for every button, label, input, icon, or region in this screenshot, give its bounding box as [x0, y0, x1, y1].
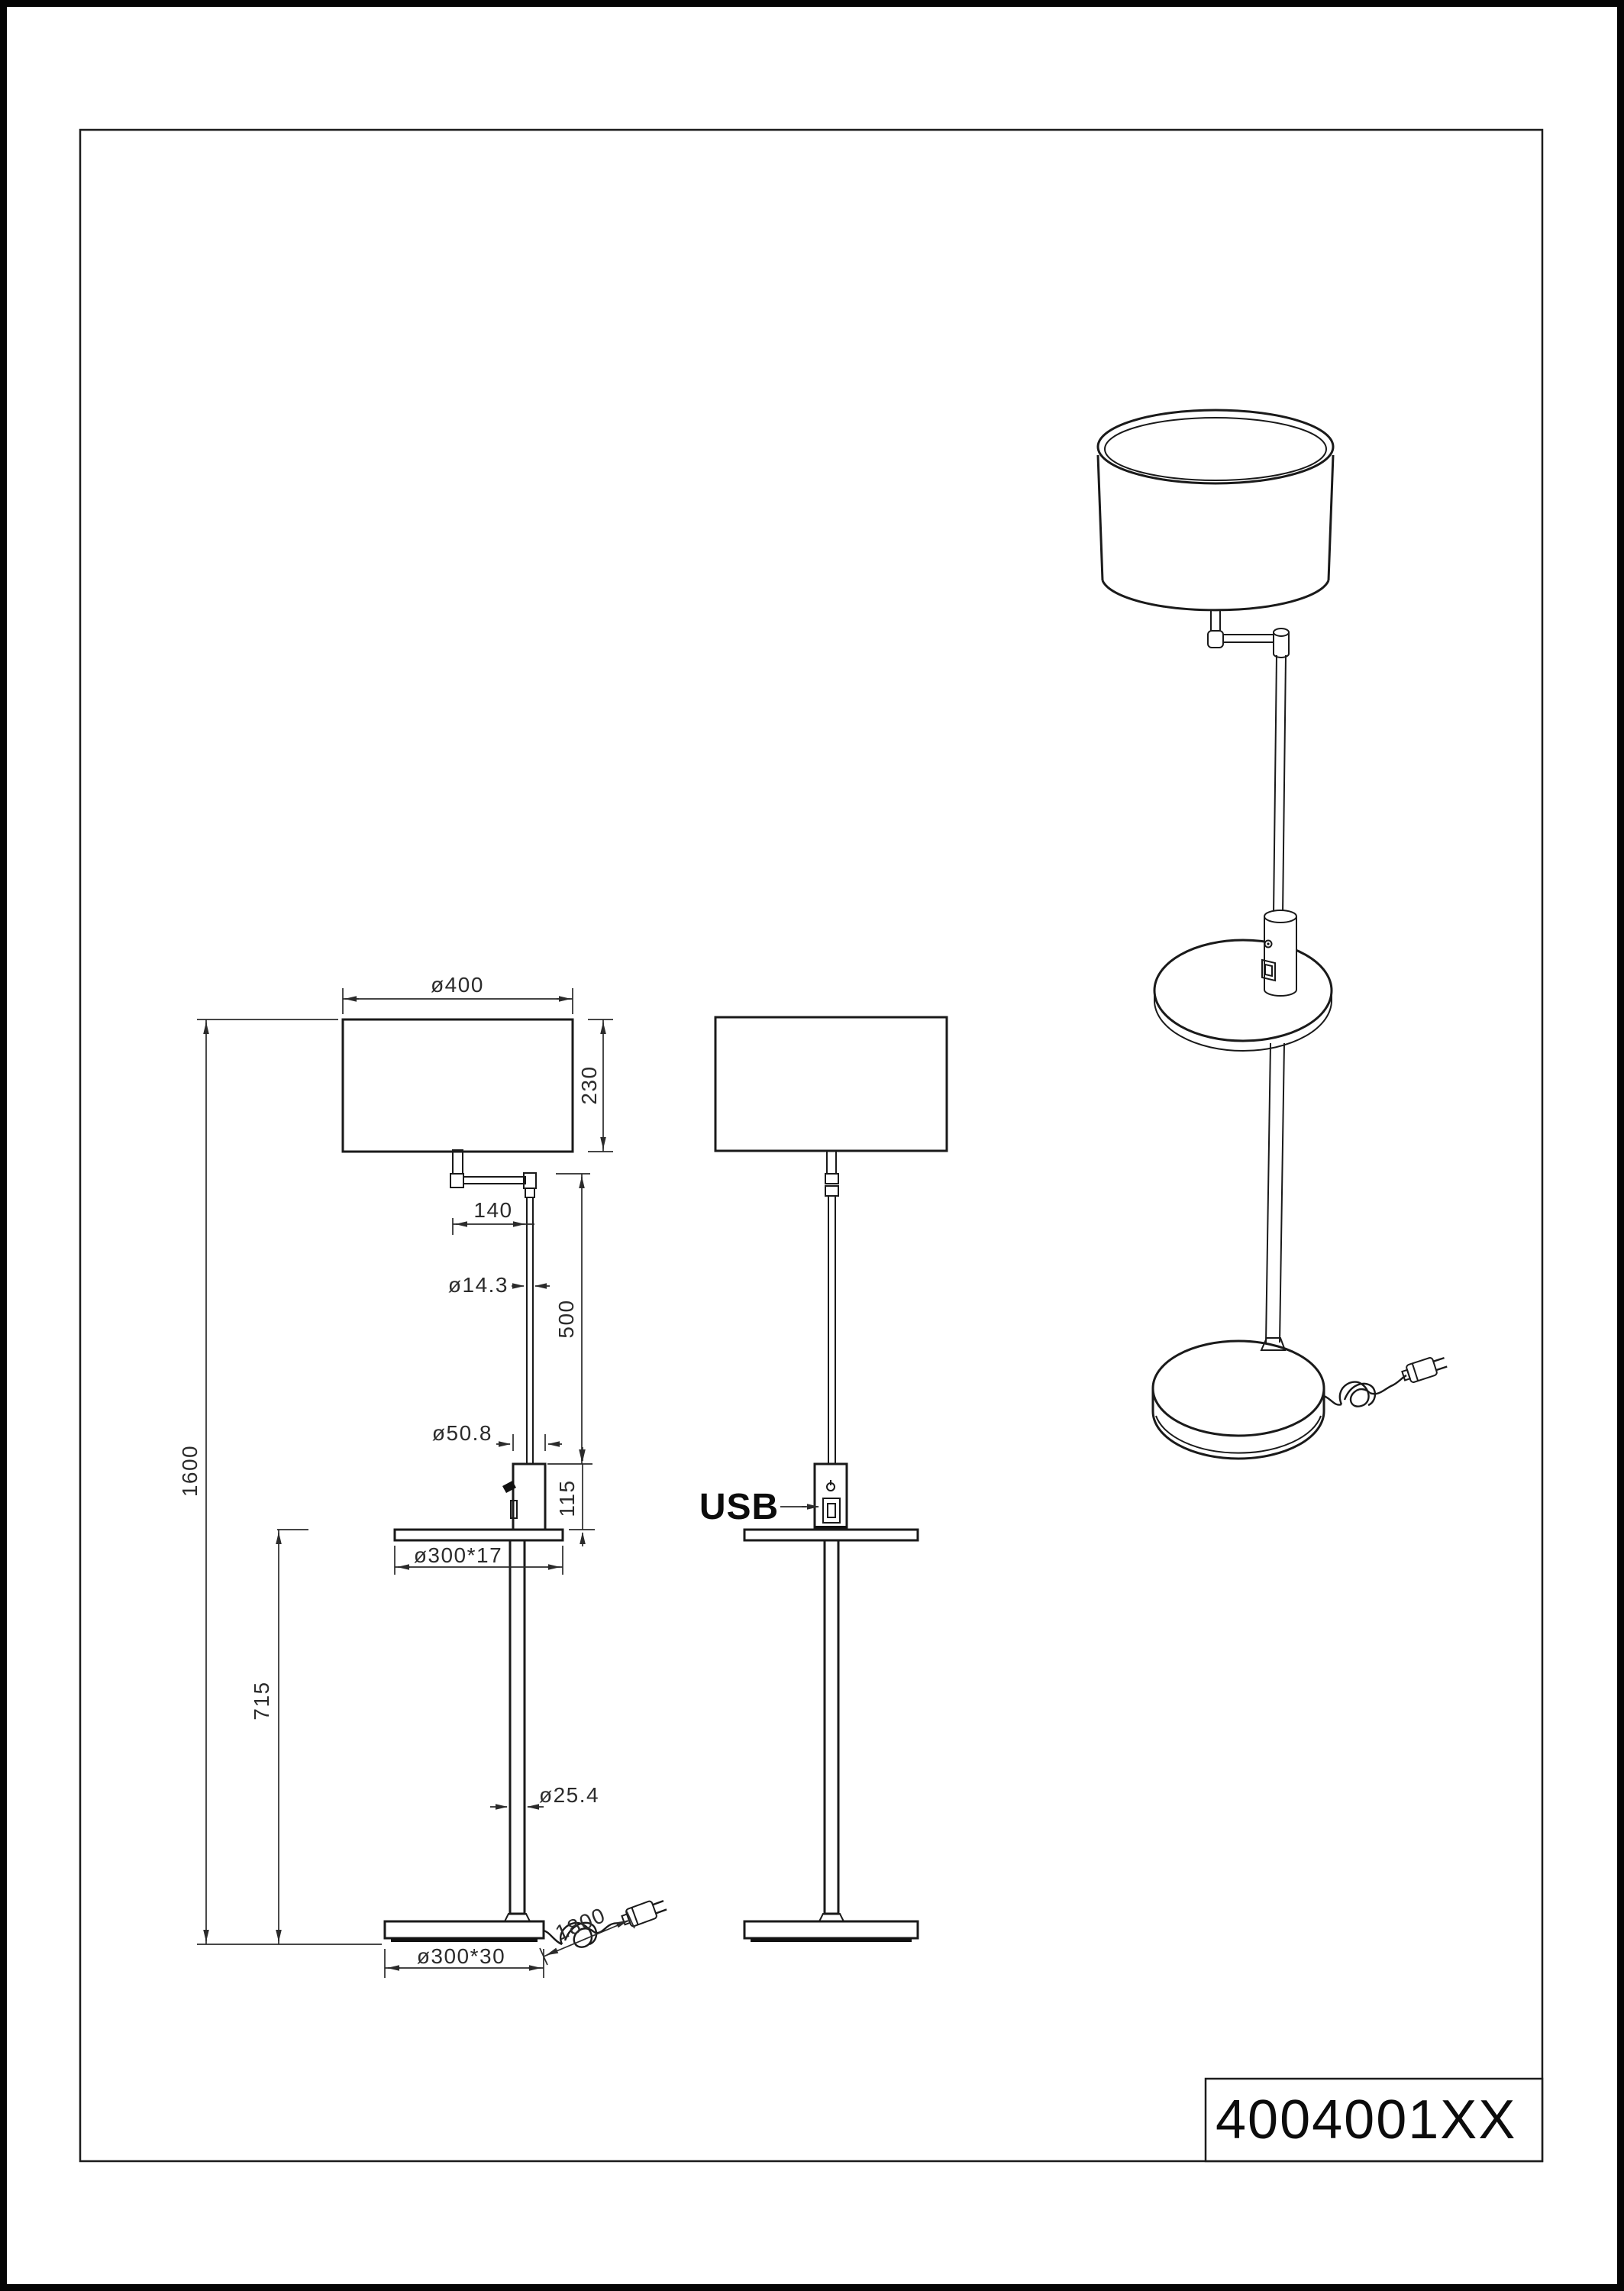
dim-arm-length: 140: [453, 1198, 534, 1235]
power-button-icon: [827, 1480, 835, 1491]
joint-upper-front: [825, 1174, 838, 1184]
dim-cord-length: 1800: [540, 1903, 634, 1965]
usb-label: USB: [699, 1487, 779, 1527]
dim-cord-length-label: 1800: [552, 1903, 609, 1945]
side-view: [343, 1019, 668, 1947]
shade-outline-front: [715, 1017, 947, 1151]
power-cord-3d: [1324, 1353, 1448, 1406]
usb-callout: USB: [699, 1487, 818, 1527]
part-number: 4004001XX: [1216, 2089, 1516, 2150]
joint-lower-front: [825, 1186, 838, 1196]
arm-joint-left: [450, 1174, 463, 1188]
upper-pole-front: [828, 1196, 835, 1464]
table-tray-front: [744, 1530, 918, 1540]
dim-usb-body-diameter: ø50.8: [432, 1421, 562, 1451]
technical-drawing: ø400 230 140 ø14.3: [0, 0, 1624, 2291]
shade-stem-front: [827, 1151, 836, 1174]
side-view-dimensions: ø400 230 140 ø14.3: [178, 973, 634, 1978]
upper-pole-3d: [1274, 655, 1286, 915]
front-view: USB: [699, 1017, 947, 1942]
shade-stem: [453, 1150, 463, 1174]
arm-3d: [1208, 611, 1289, 658]
dim-upper-pole-diameter: ø14.3: [448, 1273, 550, 1297]
perspective-view: [1098, 410, 1448, 1459]
part-number-box: 4004001XX: [1206, 2079, 1542, 2161]
dim-lower-pole-diameter-label: ø25.4: [539, 1783, 599, 1807]
dim-table-height: 715: [250, 1530, 308, 1944]
dim-table-size-label: ø300*17: [414, 1543, 502, 1567]
dim-usb-body-height-label: 115: [555, 1479, 579, 1517]
usb-module-3d: [1262, 910, 1296, 996]
dim-base-size-label: ø300*30: [417, 1944, 505, 1968]
shade-outline: [343, 1019, 573, 1152]
dim-total-height: 1600: [178, 1019, 382, 1944]
arm-joint-right-lower: [525, 1188, 534, 1197]
table-3d: [1154, 940, 1332, 1051]
drawing-sheet: ø400 230 140 ø14.3: [0, 0, 1624, 2291]
usb-module-side: [513, 1464, 545, 1530]
inner-frame: [80, 130, 1542, 2161]
lower-pole: [510, 1540, 525, 1914]
upper-pole: [527, 1197, 533, 1464]
dim-upper-pole-diameter-label: ø14.3: [448, 1273, 509, 1297]
dim-total-height-label: 1600: [178, 1445, 202, 1497]
swing-arm: [463, 1177, 525, 1184]
dim-arm-length-label: 140: [473, 1198, 512, 1222]
floor-base-front: [744, 1921, 918, 1938]
dim-lower-pole-diameter: ø25.4: [490, 1783, 599, 1807]
dim-table-height-label: 715: [250, 1681, 273, 1720]
lower-pole-front: [825, 1540, 838, 1914]
floor-base-side: [385, 1921, 544, 1938]
dim-table-size: ø300*17: [395, 1543, 563, 1575]
table-tray-side: [395, 1530, 563, 1540]
dim-base-size: ø300*30: [385, 1944, 544, 1978]
dim-shade-height: 230: [577, 1019, 613, 1152]
lower-pole-3d: [1266, 1043, 1284, 1343]
power-plug-3d: [1401, 1353, 1449, 1385]
base-pad-front: [751, 1938, 912, 1942]
dim-usb-body-diameter-label: ø50.8: [432, 1421, 492, 1445]
shade-3d: [1098, 410, 1333, 610]
base-pad: [391, 1938, 538, 1942]
dim-upper-pole-length: 500: [554, 1174, 590, 1464]
base-3d: [1153, 1341, 1324, 1459]
dim-shade-diameter-label: ø400: [431, 973, 484, 997]
dim-shade-diameter: ø400: [343, 973, 573, 1014]
dim-shade-height-label: 230: [577, 1065, 601, 1104]
dim-usb-body-height: 115: [547, 1447, 595, 1546]
dim-upper-pole-length-label: 500: [554, 1299, 578, 1338]
usb-module-front: [815, 1464, 847, 1530]
usb-port-front: [823, 1498, 840, 1523]
